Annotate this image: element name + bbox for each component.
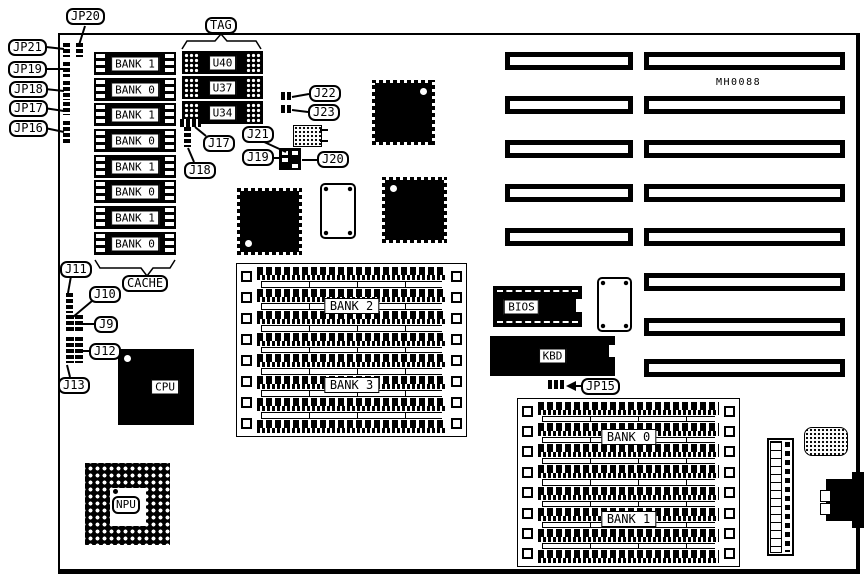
cpu-chip: CPU [118, 349, 194, 425]
pin-column [96, 157, 105, 176]
isa-slot [505, 96, 633, 114]
simm-latch [724, 487, 735, 498]
simm-latch [522, 548, 533, 559]
callout-j12: J12 [89, 343, 121, 360]
isa-slot [505, 184, 633, 202]
pin1-marker [390, 185, 397, 192]
simm-gap [261, 412, 442, 419]
isa-slot [644, 273, 845, 291]
pin-column [165, 182, 174, 201]
simm-latch [724, 446, 735, 457]
simm-latch [522, 467, 533, 478]
callout-j21: J21 [242, 126, 274, 143]
simm-latch [451, 271, 462, 282]
simm-gap [542, 458, 715, 464]
keyboard-connector-tab [820, 503, 831, 515]
simm-socket-row [538, 529, 719, 542]
simm-latch-column [722, 401, 737, 564]
callout-j9: J9 [94, 316, 118, 333]
simm-gap [542, 479, 715, 485]
callout-jp16: JP16 [9, 120, 48, 137]
jumper-jp15 [548, 380, 566, 389]
simm-socket-row [538, 402, 719, 415]
callout-tag: TAG [205, 17, 237, 34]
bank-label: BANK 0 [111, 184, 159, 199]
simm-gap [261, 368, 442, 375]
simm-latch [241, 313, 252, 324]
simm-latch [241, 271, 252, 282]
cpu-label: CPU [151, 380, 179, 395]
simm-latch [241, 397, 252, 408]
cache-chip-row: BANK 0 [94, 180, 176, 203]
cache-chip-row: BANK 1 [94, 206, 176, 229]
simm-socket-row [257, 333, 446, 346]
pin-column [96, 182, 105, 201]
simm-latch [451, 397, 462, 408]
isa-slot [644, 140, 845, 158]
simm-latch [522, 446, 533, 457]
jumper-j13 [75, 337, 83, 363]
bank-label: BANK 0 [111, 133, 159, 148]
pin-column [246, 103, 261, 122]
callout-j11: J11 [60, 261, 92, 278]
isa-slot [644, 228, 845, 246]
simm-socket-row [257, 398, 446, 411]
oscillator-socket [320, 183, 356, 239]
npu-cavity: NPU [110, 488, 146, 526]
isa-slot [505, 228, 633, 246]
simm-latch [241, 334, 252, 345]
callout-jp17: JP17 [9, 100, 48, 117]
isa-slot [644, 96, 845, 114]
simm-latch [724, 467, 735, 478]
jumper-j18 [184, 127, 191, 147]
chip-notch [609, 345, 615, 357]
simm-latch [241, 355, 252, 366]
simm-latch [724, 528, 735, 539]
pin-column [96, 80, 105, 99]
jumper-jp20 [76, 43, 83, 57]
jumper-jp21 [63, 43, 70, 57]
bank-label: BANK 1 [111, 210, 159, 225]
simm-latch-column [520, 401, 535, 564]
simm-gap [261, 281, 442, 288]
pin-column [96, 105, 105, 124]
simm-socket-row [538, 465, 719, 478]
jumper-jp17 [63, 102, 70, 115]
callout-j18: J18 [184, 162, 216, 179]
cache-chip-row: BANK 1 [94, 52, 176, 75]
chip-ref-label: U34 [209, 105, 237, 120]
bank-label: BANK 1 [111, 159, 159, 174]
simm-block-bank2-bank3: BANK 2 BANK 3 [236, 263, 467, 437]
pin-column [165, 208, 174, 227]
simm-sockets [518, 399, 739, 566]
tag-chip-u40: U40 [182, 51, 263, 74]
pin-column [165, 131, 174, 150]
chip-ref-label: U40 [209, 55, 237, 70]
callout-j22: J22 [309, 85, 341, 102]
pin-column [96, 208, 105, 227]
keyboard-connector-tab [820, 490, 831, 502]
isa-slot [644, 184, 845, 202]
simm-latch-column [239, 266, 254, 434]
callout-j20: J20 [317, 151, 349, 168]
pin-column [246, 53, 261, 72]
pin-column [184, 53, 199, 72]
simm-latch [724, 548, 735, 559]
cache-chip-row: BANK 1 [94, 155, 176, 178]
simm-latch-column [449, 266, 464, 434]
simm-gap [542, 501, 715, 507]
jumper-j10 [66, 315, 74, 332]
jumper-j17 [180, 119, 201, 127]
cache-chip-row: BANK 0 [94, 232, 176, 255]
simm-latch [724, 426, 735, 437]
simm-latch [522, 528, 533, 539]
bios-chip: BIOS [493, 286, 582, 327]
jumper-j11 [66, 293, 73, 313]
pin-column [96, 54, 105, 73]
callout-jp18: JP18 [9, 81, 48, 98]
simm-latch [451, 376, 462, 387]
callout-j13: J13 [58, 377, 90, 394]
bank-label: BANK 0 [601, 429, 656, 445]
tag-chip-u37: U37 [182, 76, 263, 99]
jumper-jp19 [63, 62, 70, 77]
chip-dash-line [497, 321, 578, 323]
oscillator-socket [597, 277, 632, 332]
callout-jp21: JP21 [8, 39, 47, 56]
isa-slot [644, 52, 845, 70]
jumper-j22 [281, 92, 292, 100]
pin-column [96, 234, 105, 253]
chip-ref-label: U37 [209, 80, 237, 95]
callout-j23: J23 [308, 104, 340, 121]
npu-label: NPU [112, 496, 140, 514]
pin1-marker [420, 88, 427, 95]
simm-gap [261, 325, 442, 332]
callout-j19: J19 [242, 149, 274, 166]
pin-column [165, 234, 174, 253]
simm-latch [451, 418, 462, 429]
isa-slot [644, 318, 845, 336]
callout-cache: CACHE [122, 275, 168, 292]
pin1-marker [245, 240, 252, 247]
simm-latch [522, 487, 533, 498]
bank-label: BANK 0 [111, 82, 159, 97]
qfp-chip [382, 177, 447, 243]
pin1-marker [113, 489, 118, 494]
jumper-j23 [281, 105, 292, 113]
bios-label: BIOS [504, 299, 539, 314]
simm-latch [451, 292, 462, 303]
simm-latch [241, 292, 252, 303]
pin-column [165, 54, 174, 73]
simm-socket-row [257, 267, 446, 280]
callout-j10: J10 [89, 286, 121, 303]
simm-latch [451, 313, 462, 324]
simm-latch [522, 406, 533, 417]
keyboard-din-connector-flange [852, 472, 864, 528]
power-connector [767, 438, 794, 556]
simm-latch [241, 418, 252, 429]
connector-j19-j20 [279, 148, 301, 170]
kbd-label: KBD [539, 349, 567, 364]
bank-label: BANK 0 [111, 236, 159, 251]
simm-socket-row [257, 420, 446, 433]
callout-jp20: JP20 [66, 8, 105, 25]
simm-latch [522, 508, 533, 519]
pin1-marker [124, 355, 131, 362]
simm-latch [241, 376, 252, 387]
cache-chip-row: BANK 0 [94, 129, 176, 152]
simm-block-bank0-bank1: BANK 0 BANK 1 [517, 398, 740, 567]
simm-gap [261, 347, 442, 354]
simm-latch [724, 406, 735, 417]
qfp-chip [237, 188, 302, 255]
bank-label: BANK 1 [111, 56, 159, 71]
simm-latch [451, 355, 462, 366]
npu-socket: NPU [85, 463, 170, 545]
simm-sockets [237, 264, 466, 436]
pin-column [184, 78, 199, 97]
isa-slot [644, 359, 845, 377]
simm-socket-row [538, 487, 719, 500]
bank-label: BANK 2 [324, 298, 379, 314]
bank-label: BANK 1 [601, 511, 656, 527]
chip-dash-line [497, 290, 578, 292]
simm-gap [542, 416, 715, 422]
simm-socket-row [538, 444, 719, 457]
pin-column [165, 105, 174, 124]
simm-socket-row [257, 354, 446, 367]
board-part-number: MH0088 [716, 77, 761, 88]
component-pad [804, 427, 848, 456]
pin-column [96, 131, 105, 150]
simm-gap [542, 543, 715, 549]
simm-socket-row [538, 550, 719, 563]
pin-column [246, 78, 261, 97]
bank-label: BANK 1 [111, 107, 159, 122]
cache-chip-row: BANK 1 [94, 103, 176, 126]
simm-latch [724, 508, 735, 519]
pin-column [165, 157, 174, 176]
jumper-j9 [75, 315, 83, 332]
callout-jp19: JP19 [8, 61, 47, 78]
isa-slot [505, 140, 633, 158]
callout-jp15: JP15 [581, 378, 620, 395]
motherboard-diagram: JP20 JP21 JP19 JP18 JP17 JP16 BANK 1 BAN… [0, 0, 864, 578]
cache-chip-row: BANK 0 [94, 78, 176, 101]
callout-j17: J17 [203, 135, 235, 152]
chip-notch [576, 299, 582, 312]
jumper-jp18 [63, 81, 70, 100]
isa-slot [505, 52, 633, 70]
simm-latch [522, 426, 533, 437]
qfp-chip [372, 80, 435, 145]
crystal [293, 125, 322, 147]
jumper-jp16 [63, 121, 70, 143]
jumper-j12 [66, 337, 74, 363]
bank-label: BANK 3 [324, 377, 379, 393]
pin-column [165, 80, 174, 99]
simm-latch [451, 334, 462, 345]
keyboard-controller-chip: KBD [490, 336, 615, 376]
